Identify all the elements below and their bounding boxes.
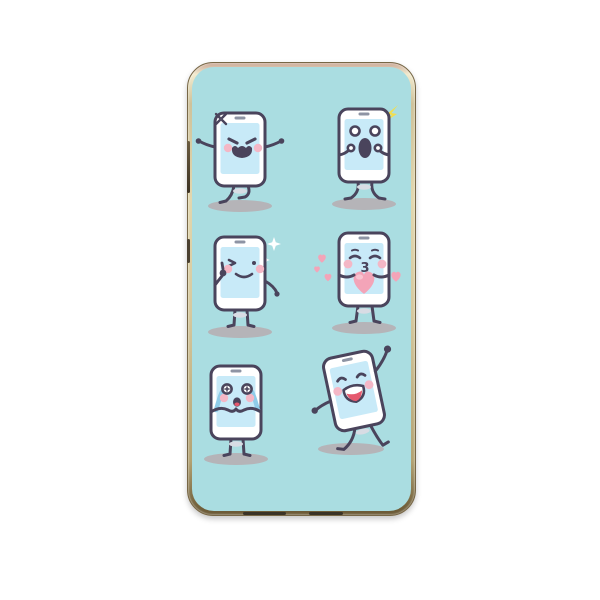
hand-right bbox=[375, 145, 381, 151]
heart-icon bbox=[314, 266, 320, 272]
heart-icon bbox=[318, 254, 326, 262]
big-heart-highlight bbox=[356, 274, 363, 279]
arm-left bbox=[199, 141, 215, 147]
leg-left bbox=[345, 182, 358, 199]
home-button bbox=[229, 441, 243, 446]
home-button bbox=[357, 308, 371, 313]
leg-left bbox=[350, 306, 358, 323]
cheek-left bbox=[220, 394, 228, 402]
ground-shadow bbox=[208, 200, 272, 212]
home-button bbox=[233, 312, 247, 317]
leg-left bbox=[220, 186, 234, 203]
eye-right bbox=[252, 261, 256, 265]
cheek-right bbox=[254, 144, 262, 152]
sparkle-icon bbox=[267, 237, 281, 251]
leg-left bbox=[224, 439, 231, 456]
bottom-port-right bbox=[309, 512, 343, 515]
product-photo: 3 bbox=[0, 0, 600, 600]
fist-right bbox=[383, 345, 392, 354]
phone-character-dancing-icon bbox=[299, 344, 409, 459]
thumb-up bbox=[222, 263, 223, 269]
ground-shadow bbox=[332, 322, 396, 334]
phone-case-frame: 3 bbox=[187, 62, 416, 516]
hand-right bbox=[274, 291, 279, 296]
arm-right bbox=[265, 141, 281, 147]
cheek-left bbox=[344, 260, 353, 269]
heart-icon bbox=[391, 272, 400, 282]
ground-shadow bbox=[318, 443, 384, 455]
speaker-slot bbox=[359, 237, 370, 240]
case-print: 3 bbox=[192, 67, 411, 511]
tongue bbox=[234, 403, 239, 407]
speaker-slot bbox=[359, 113, 370, 116]
tilted-phone-group bbox=[301, 345, 409, 458]
leg-right bbox=[372, 306, 380, 323]
ground-shadow bbox=[204, 453, 268, 465]
speaker-slot bbox=[231, 370, 242, 373]
fist-right bbox=[279, 138, 285, 144]
fist-left bbox=[196, 138, 202, 144]
home-button bbox=[357, 184, 371, 189]
shocked-mouth bbox=[359, 138, 372, 158]
phone-character-surprised-icon bbox=[314, 103, 411, 213]
bottom-port-left bbox=[243, 512, 286, 515]
home-button bbox=[233, 188, 247, 193]
eye-right bbox=[371, 127, 380, 136]
heart-icon bbox=[325, 274, 332, 281]
speaker-slot bbox=[235, 117, 246, 120]
cheek-right bbox=[246, 394, 254, 402]
cheek-left bbox=[224, 144, 232, 152]
eye-left bbox=[351, 127, 360, 136]
ground-shadow bbox=[332, 198, 396, 210]
side-button-upper bbox=[187, 141, 190, 193]
phone-character-kiss-icon: 3 bbox=[314, 227, 411, 337]
side-button-lower bbox=[187, 239, 190, 263]
fist-thumbs-up bbox=[220, 270, 227, 277]
leg-right bbox=[247, 310, 254, 327]
cheek-right bbox=[378, 260, 387, 269]
hand-left bbox=[348, 145, 354, 151]
ground-shadow bbox=[208, 326, 272, 338]
leg-right bbox=[372, 182, 385, 199]
leg-right bbox=[243, 439, 250, 456]
leg-left bbox=[228, 310, 235, 327]
phone-character-crying-icon bbox=[192, 360, 286, 470]
speaker-slot bbox=[235, 241, 246, 244]
phone-character-wink-icon bbox=[192, 231, 290, 341]
arm-right bbox=[265, 281, 277, 293]
cheek-right bbox=[256, 265, 264, 273]
phone-character-angry-icon bbox=[192, 107, 290, 217]
